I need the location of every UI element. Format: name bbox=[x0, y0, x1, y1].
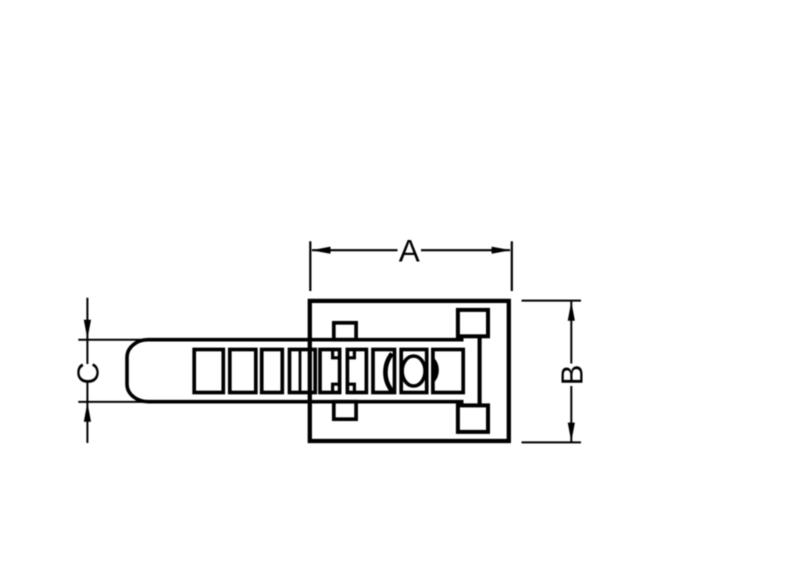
svg-text:C: C bbox=[71, 362, 106, 384]
svg-text:A: A bbox=[399, 233, 420, 269]
svg-text:B: B bbox=[554, 365, 589, 386]
